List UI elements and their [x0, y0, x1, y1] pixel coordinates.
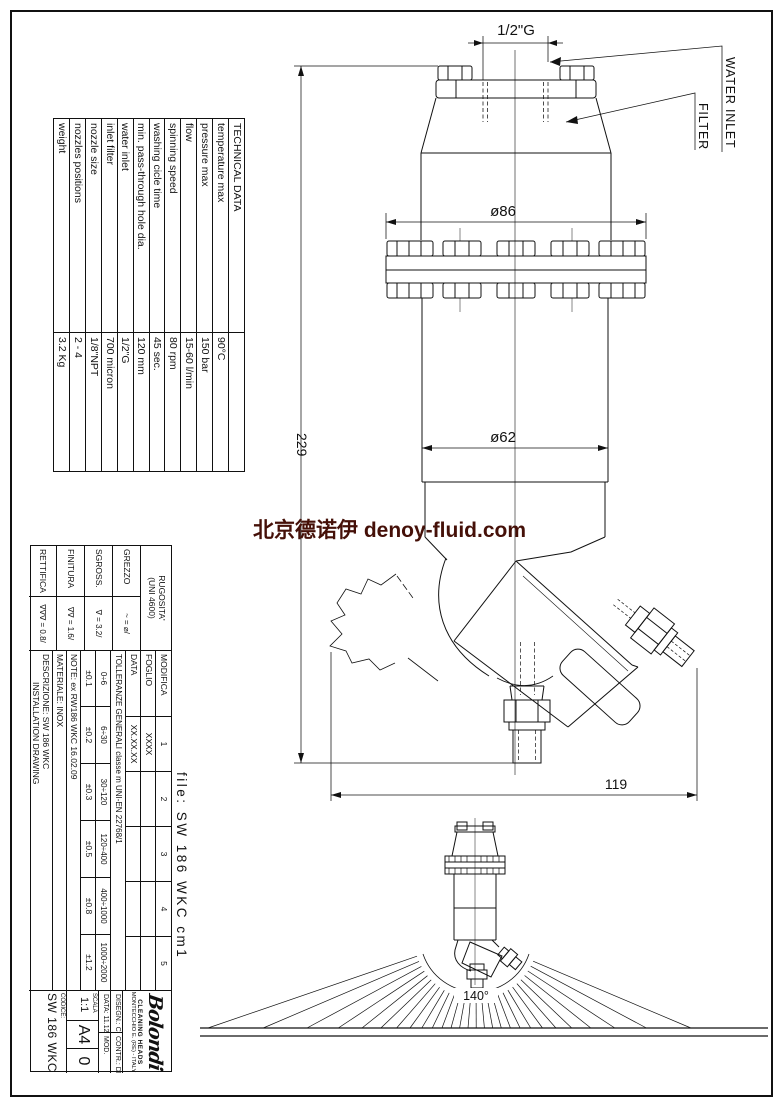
side-nozzle: [604, 587, 700, 674]
file-label: file: SW 186 WKC cm1: [174, 772, 189, 959]
arrow: [598, 445, 608, 451]
date-cell: DATA: 11.12.09: [99, 990, 111, 1032]
material-row: MATERIALE: INOX: [53, 650, 67, 990]
disegn-cell: DISEGN.: CR: [111, 990, 123, 1032]
filter-cone: [421, 98, 611, 240]
table-title: TECHNICAL DATA: [229, 119, 245, 333]
arrow: [687, 792, 697, 798]
table-row: inlet filter700 micron: [101, 119, 117, 472]
table-row: water inlet1/2"G: [117, 119, 133, 472]
mod-cell: MOD.: [99, 1032, 111, 1073]
dim-offset: [331, 652, 697, 801]
table-row: washing cicle time45 sec.: [149, 119, 165, 472]
table-row: temperature max90°C: [213, 119, 229, 472]
spray-ray: [208, 956, 417, 1028]
table-row: flow15-60 l/min: [181, 119, 197, 472]
arrow: [298, 66, 304, 76]
dim-height: [294, 66, 518, 763]
table-row: min. pass-through hole dia.120 mm: [133, 119, 149, 472]
arrow: [298, 753, 304, 763]
technical-data-table: TECHNICAL DATA temperature max90°C press…: [53, 118, 245, 472]
arrow: [331, 792, 341, 798]
table-row: weight3.2 Kg: [54, 119, 70, 472]
arrow: [566, 116, 578, 124]
code-cell: CODICE: SW 186 WKC: [29, 990, 67, 1073]
table-row: TECHNICAL DATA: [229, 119, 245, 472]
spray-ray: [397, 984, 436, 1028]
dim-offset-text: 119: [605, 776, 628, 792]
dim-inlet-text: 1/2"G: [497, 22, 535, 39]
logo-tagline: CLEANING HEADS: [136, 999, 143, 1065]
break-line: [330, 574, 438, 681]
roughness-section: RUGOSITA' (UNI 4600) GREZZO ~ = ⌀/ SGROS…: [29, 546, 171, 650]
dim-flange: [386, 213, 646, 239]
spray-ray: [482, 999, 485, 1028]
spray-ray: [362, 976, 428, 1028]
main-flange: [386, 228, 646, 312]
filter-label: FILTER: [696, 103, 710, 150]
watermark: 北京德诺伊 denoy-fluid.com: [253, 514, 526, 544]
spray-ray: [432, 993, 449, 1028]
water-inlet-label: WATER INLET: [723, 57, 737, 148]
modifica-label: MODIFICA: [156, 650, 171, 716]
dim-inlet: [468, 36, 563, 122]
arrow: [548, 40, 557, 46]
table-row: pressure max150 bar: [197, 119, 213, 472]
dim-body-text: ø62: [490, 429, 516, 446]
dim-height-text: 229: [294, 433, 310, 457]
table-row: nozzle size1/8"NPT: [85, 119, 101, 472]
spray-ray: [525, 976, 591, 1029]
arrow: [636, 219, 646, 225]
spray-ray: [521, 980, 572, 1028]
note-row: NOTE: ex RW186 WKC 16.02.09: [67, 650, 81, 990]
arrow: [550, 57, 561, 66]
scale-cell: SCALA 1:1: [67, 990, 99, 1020]
description-row: DESCRIZIONE: SW 186 WKC INSTALLATION DRA…: [29, 650, 53, 990]
table-row: nozzles positions2 - 4: [70, 119, 86, 472]
spray-ray: [503, 993, 520, 1028]
foglio-label: FOGLIO: [141, 650, 156, 716]
logo-address: MONTECCHIO E. (RE) - ITALY: [129, 992, 136, 1073]
bolondi-logo: Bolondi: [143, 992, 165, 1071]
arrow: [422, 445, 432, 451]
spray-view: [445, 818, 524, 988]
spray-ray: [381, 980, 431, 1028]
spray-fan: [208, 956, 691, 1028]
contr-cell: CONTR.: DM: [111, 1032, 123, 1073]
revision-tolerance-section: MODIFICA 1 2 3 4 5 FOGLIO XXXX DATA XX.X…: [29, 650, 171, 990]
format-cell: A4: [67, 1020, 99, 1048]
arrow: [386, 219, 396, 225]
drawing-sheet: 1/2"G ø86 ø62 229 119 WATER INLET FILTER…: [0, 0, 781, 1105]
dim-flange-text: ø86: [490, 203, 516, 220]
logo-section: Bolondi CLEANING HEADS MONTECCHIO E. (RE…: [29, 990, 171, 1073]
roughness-header: RUGOSITA': [156, 575, 166, 620]
spray-ray: [338, 971, 424, 1028]
data-label: DATA: [126, 650, 141, 716]
title-block: RUGOSITA' (UNI 4600) GREZZO ~ = ⌀/ SGROS…: [30, 545, 172, 1072]
spray-ray: [533, 961, 691, 1028]
down-nozzle: [504, 642, 550, 763]
spray-ray: [528, 971, 615, 1028]
spray-ray: [517, 984, 556, 1028]
arrow: [474, 40, 483, 46]
ground-line: [200, 1028, 768, 1036]
spray-ray: [468, 999, 471, 1028]
table-row: spinning speed80 rpm: [165, 119, 181, 472]
top-flange: [436, 66, 596, 98]
revision-cell: 0: [67, 1048, 99, 1073]
spray-angle-text: 140°: [463, 989, 489, 1003]
tolerance-header: TOLLERANZE GENERALI classe m UNI-EN 2276…: [111, 650, 126, 990]
spray-ray: [263, 961, 419, 1028]
